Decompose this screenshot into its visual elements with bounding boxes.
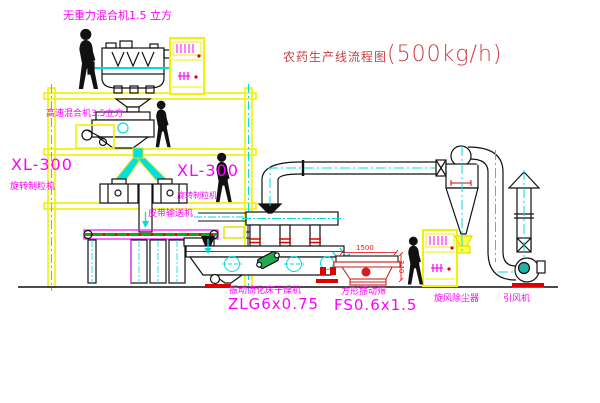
vibrating-sieve-model: FS0.6x1.5 bbox=[334, 298, 417, 313]
gravity-mixer-label: 无重力混合机1.5 立方 bbox=[63, 10, 172, 21]
granulator-discharge-pipe bbox=[139, 184, 152, 232]
granulator-model-right: XL-300 bbox=[177, 163, 239, 179]
induced-draft-fan bbox=[512, 258, 545, 288]
high-speed-mixer-label: 高速混合机3.5立方 bbox=[46, 110, 123, 119]
person-figure bbox=[156, 101, 171, 148]
person-figure bbox=[79, 29, 98, 89]
title-text: 农药生产线流程图 bbox=[283, 44, 387, 63]
granulator-left bbox=[100, 179, 138, 203]
sieve-length-dimension: 1500 bbox=[356, 245, 374, 252]
process-flow-diagram: 无重力混合机1.5 立方 农药生产线流程图 (500kg/h) 高速混合机3.5… bbox=[0, 0, 600, 403]
granulator-model-left: XL-300 bbox=[11, 157, 73, 173]
belt-conveyor-label: 皮带输送机 bbox=[148, 210, 193, 219]
conveyor-supports bbox=[88, 240, 185, 283]
y-chute bbox=[115, 148, 167, 180]
high-speed-mixer bbox=[76, 99, 154, 148]
control-cabinet-top bbox=[170, 38, 204, 94]
fan-label: 引风机 bbox=[503, 295, 530, 304]
sieve-height-dimension: 340 bbox=[397, 260, 404, 273]
exhaust-duct bbox=[259, 160, 440, 213]
diagram-title: 农药生产线流程图 (500kg/h) bbox=[283, 44, 502, 66]
granulator-name-right: 旋转制粒机 bbox=[177, 192, 217, 200]
title-capacity: (500kg/h) bbox=[387, 44, 502, 66]
person-figure bbox=[408, 237, 423, 285]
fluid-bed-dryer-model: ZLG6x0.75 bbox=[228, 297, 319, 312]
gravity-free-mixer bbox=[88, 41, 178, 93]
granulator-name-left: 旋转制粒机 bbox=[10, 183, 55, 192]
cyclone-label: 旋风除尘器 bbox=[434, 295, 479, 304]
control-cabinet-bottom bbox=[423, 230, 457, 286]
